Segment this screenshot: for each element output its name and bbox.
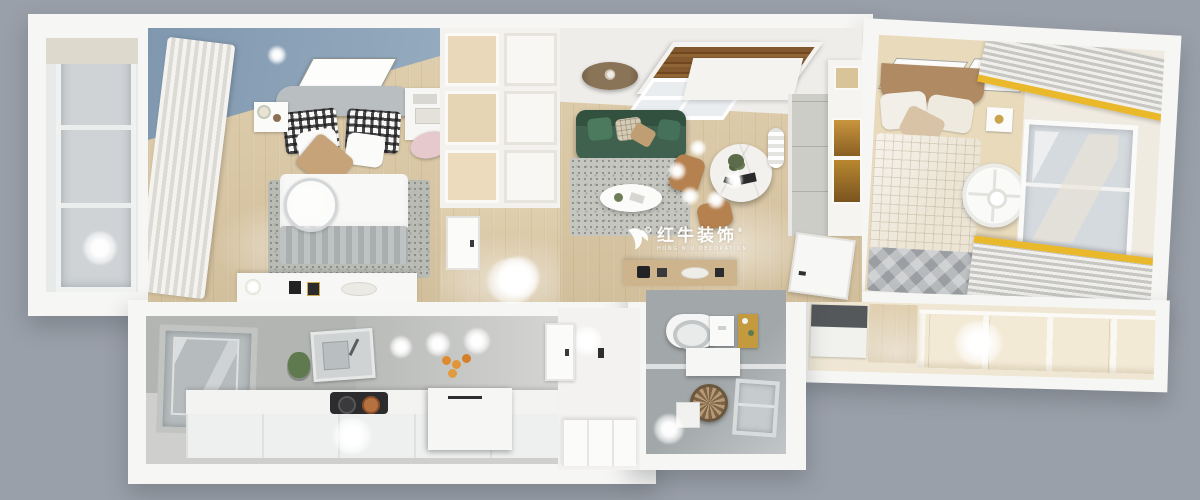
second-bedroom-walls bbox=[848, 18, 1182, 323]
jewelry-box bbox=[415, 108, 440, 124]
balcony-window bbox=[56, 48, 136, 292]
hall-light-glow bbox=[486, 258, 538, 304]
kitchen-light bbox=[390, 336, 412, 358]
door-handle bbox=[565, 349, 569, 356]
amber-glass-shelf bbox=[832, 118, 862, 158]
bull-logo-icon bbox=[626, 226, 652, 254]
flower-bouquet bbox=[245, 279, 261, 295]
brand-text: 红牛装饰® bbox=[657, 228, 748, 245]
wardrobe-door bbox=[504, 91, 558, 144]
toilet-seat bbox=[673, 320, 711, 350]
decor-tray bbox=[341, 282, 377, 296]
master-bedroom bbox=[148, 28, 440, 302]
wardrobe-shelf bbox=[445, 91, 499, 144]
sofa-pillow bbox=[657, 119, 682, 142]
balcony-top-sill bbox=[46, 38, 138, 64]
ring-chair bbox=[284, 178, 338, 232]
dark-countertop bbox=[811, 304, 868, 328]
flush-button bbox=[718, 326, 726, 330]
tv-console bbox=[623, 260, 737, 286]
dresser bbox=[237, 273, 417, 302]
toiletry bbox=[742, 318, 748, 324]
window-bench bbox=[788, 94, 832, 236]
gray-blanket bbox=[280, 226, 408, 264]
wardrobe bbox=[440, 28, 562, 208]
wardrobe-door bbox=[504, 150, 558, 203]
books bbox=[413, 94, 437, 104]
pendant-light bbox=[725, 171, 743, 189]
gold-shelf-rack bbox=[738, 314, 758, 348]
cabinet-shelf bbox=[834, 66, 860, 90]
rear-balcony bbox=[808, 300, 1156, 380]
hall-door bbox=[446, 216, 480, 270]
kitchen-light bbox=[464, 328, 490, 354]
radiator bbox=[768, 128, 784, 168]
toiletry bbox=[748, 330, 754, 336]
bathroom bbox=[646, 290, 786, 454]
cooktop bbox=[330, 392, 388, 414]
table-plant bbox=[614, 193, 623, 202]
ceiling-fan bbox=[582, 62, 638, 90]
green-sofa bbox=[576, 110, 686, 160]
bathroom-window bbox=[732, 379, 780, 438]
door-handle bbox=[799, 271, 806, 276]
sink-basin bbox=[322, 341, 350, 371]
fan-hub bbox=[987, 188, 1008, 209]
wall-hook bbox=[598, 348, 604, 358]
kitchen-island bbox=[428, 388, 512, 450]
sofa-pillow bbox=[587, 117, 613, 141]
nightstand bbox=[254, 102, 288, 132]
table-book bbox=[629, 192, 645, 204]
living-room bbox=[560, 28, 862, 302]
kitchen-backwall bbox=[356, 316, 558, 396]
faucet bbox=[349, 338, 360, 355]
flower-vase bbox=[259, 107, 269, 117]
balcony-cabinets bbox=[918, 309, 1156, 374]
window-mullion bbox=[61, 125, 131, 130]
master-bed bbox=[280, 86, 408, 262]
window-mullion bbox=[738, 403, 774, 409]
wardrobe-door bbox=[504, 33, 558, 86]
console-decor bbox=[637, 266, 650, 278]
photo-frame bbox=[289, 281, 301, 294]
pendant-light bbox=[690, 140, 706, 156]
pendant-light bbox=[707, 191, 725, 209]
bathroom-vanity bbox=[686, 348, 740, 376]
table-plant bbox=[728, 154, 744, 168]
island-handle bbox=[448, 396, 482, 399]
balcony-left bbox=[46, 38, 138, 292]
wall-cabinets bbox=[683, 58, 803, 100]
rear-balcony-walls bbox=[793, 290, 1169, 392]
nightstand bbox=[986, 107, 1013, 132]
photo-frame bbox=[307, 282, 320, 296]
wardrobe-shelf bbox=[445, 150, 499, 203]
kitchen-light bbox=[426, 332, 450, 356]
window-reflection bbox=[1029, 131, 1119, 246]
light-glow bbox=[654, 414, 684, 444]
entry-door bbox=[545, 323, 575, 381]
wardrobe-shelf bbox=[445, 33, 499, 86]
pendant-light bbox=[668, 162, 686, 180]
entry-cabinets bbox=[562, 420, 636, 466]
potted-plant bbox=[288, 352, 310, 378]
balcony-wood-floor bbox=[868, 304, 918, 363]
floorplan-render: 红牛装饰® HONG NIU DECORATION bbox=[0, 0, 1200, 500]
kitchen bbox=[146, 316, 558, 464]
amber-glass-shelf bbox=[832, 158, 862, 204]
light-glow bbox=[83, 231, 117, 265]
console-tray bbox=[681, 267, 709, 279]
watermark: 红牛装饰® HONG NIU DECORATION bbox=[626, 226, 748, 254]
interior-door bbox=[788, 232, 856, 300]
registered-mark: ® bbox=[737, 227, 746, 234]
pendant-light bbox=[681, 187, 699, 205]
table-lamp bbox=[994, 114, 1003, 123]
floor-light-glow bbox=[332, 418, 372, 454]
decor-item bbox=[273, 114, 281, 122]
kitchen-sink bbox=[310, 328, 375, 382]
copper-pan bbox=[362, 396, 380, 414]
pot bbox=[338, 396, 356, 414]
console-decor bbox=[657, 268, 667, 277]
display-cabinet bbox=[828, 60, 862, 236]
fruit-bowl bbox=[442, 356, 451, 365]
second-bedroom bbox=[865, 35, 1165, 307]
bed-end-bench bbox=[867, 247, 975, 297]
toilet-tank bbox=[710, 316, 734, 346]
door-handle bbox=[470, 240, 474, 247]
window-mullion bbox=[61, 203, 131, 208]
ring-chair-seat bbox=[293, 186, 325, 218]
brand-tagline: HONG NIU DECORATION bbox=[657, 247, 748, 252]
downlight-glow bbox=[268, 46, 286, 64]
coffee-table bbox=[600, 184, 662, 212]
side-cabinet bbox=[810, 304, 867, 358]
console-decor bbox=[715, 268, 724, 277]
fan-hub bbox=[607, 71, 614, 78]
